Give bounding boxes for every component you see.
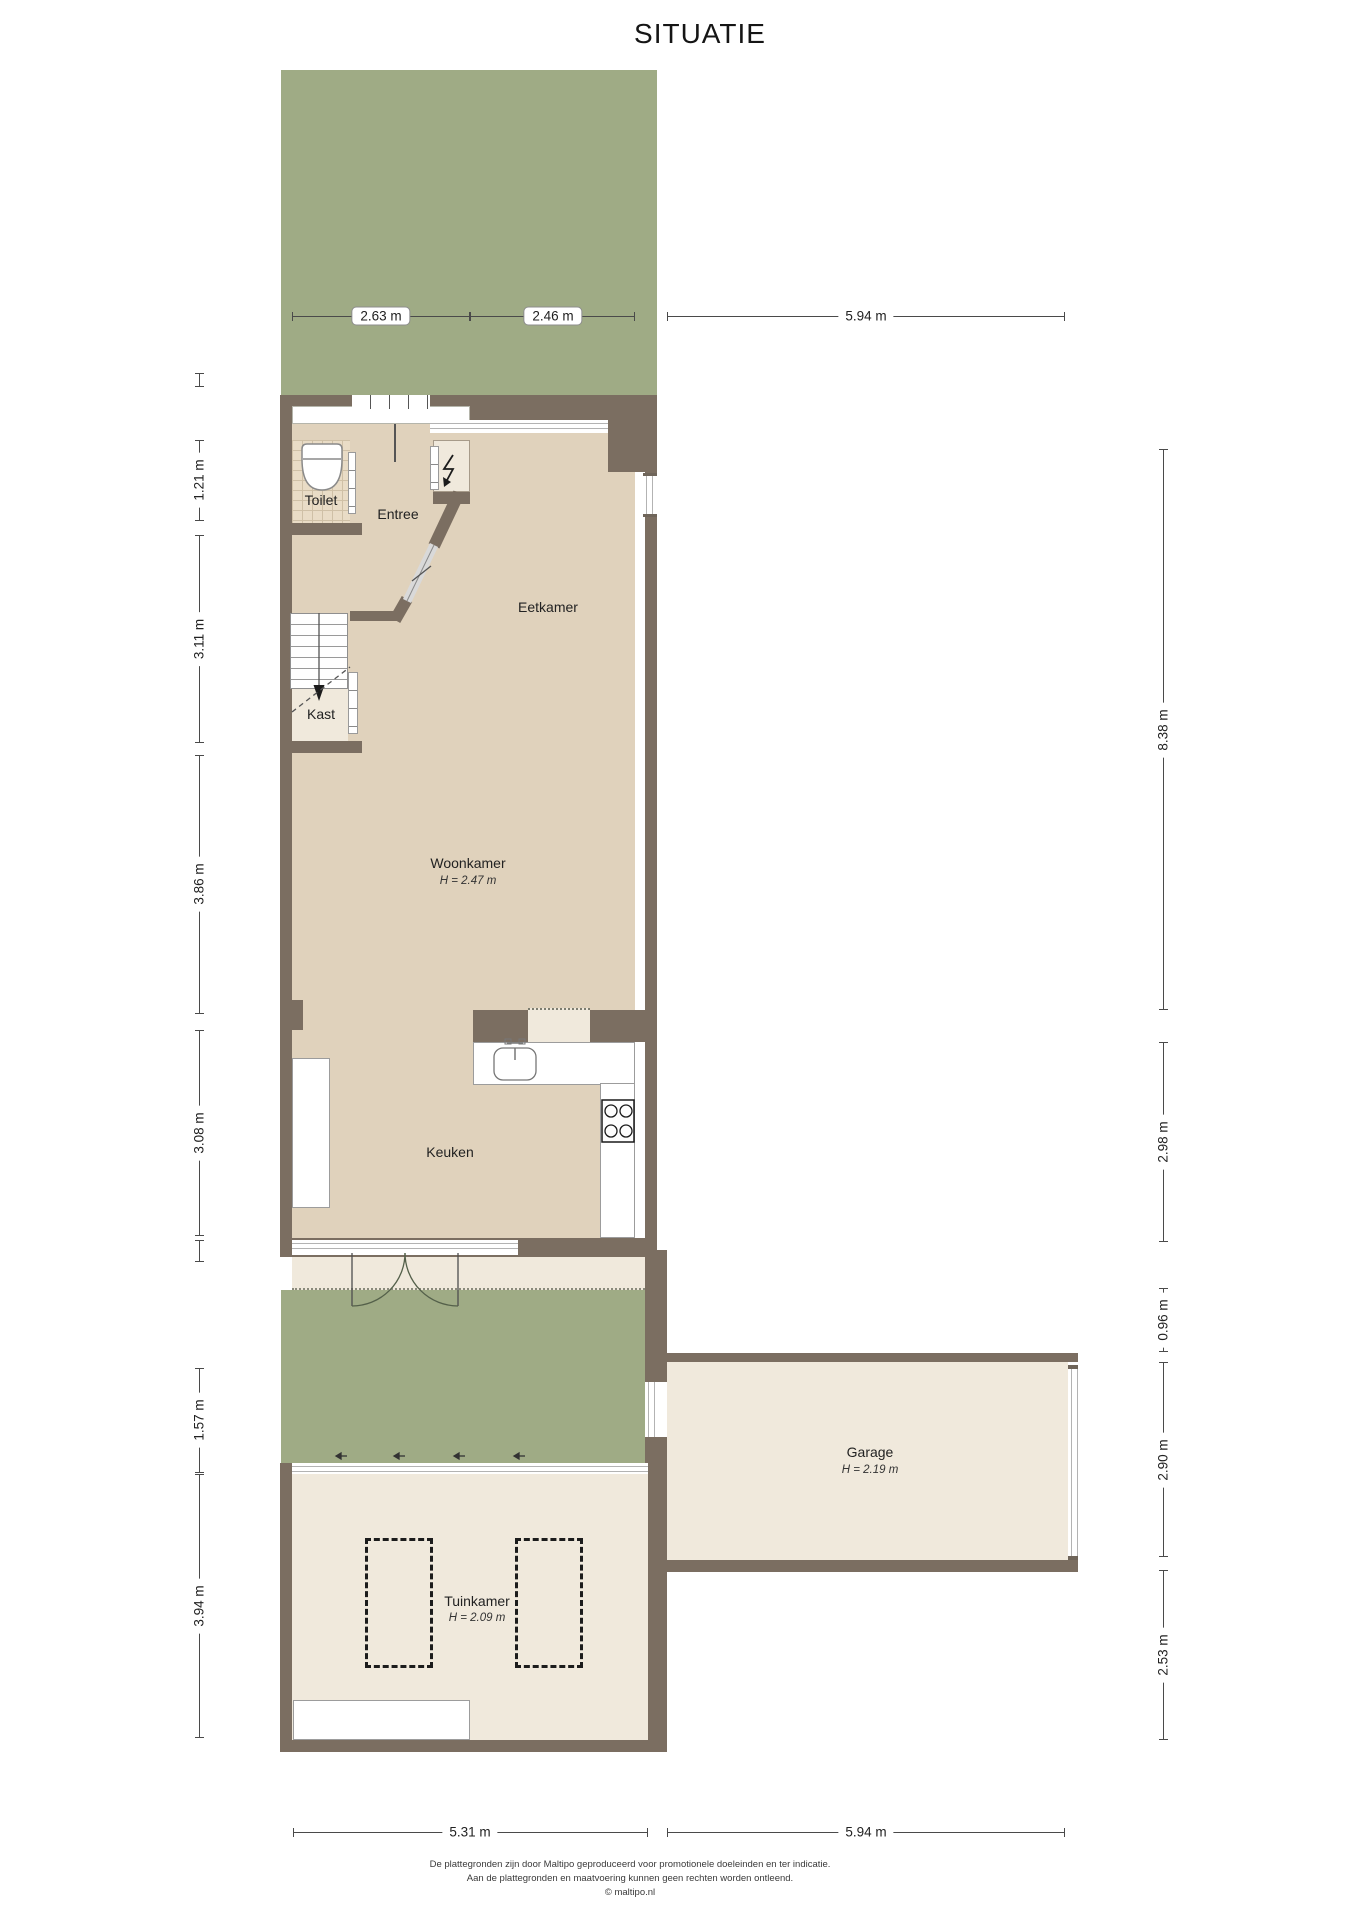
disclaimer-line-1: De plattegronden zijn door Maltipo gepro… [330,1858,930,1872]
woonkamer-label: Woonkamer [430,855,505,871]
entree-label: Entree [377,506,418,522]
disclaimer-line-3: © maltipo.nl [330,1886,930,1900]
stairs-arrow-icon [292,613,350,712]
garage-label: Garage [847,1444,894,1460]
dim-right-5-label: 2.53 m [1156,1627,1171,1682]
dim-bottom-2-label: 5.94 m [838,1825,893,1840]
keuken-label: Keuken [426,1144,473,1160]
dim-right-4-label: 2.90 m [1156,1432,1171,1487]
sink-icon [494,1039,536,1080]
dim-right-2-label: 2.98 m [1156,1114,1171,1169]
dim-top-2-label: 2.46 m [523,307,582,326]
dim-left-4-label: 3.08 m [192,1105,207,1160]
tuinkamer-label: Tuinkamer [444,1593,510,1609]
french-doors [352,1253,458,1306]
dim-left-2-label: 3.11 m [192,612,207,666]
dim-right-3-label: 0.96 m [1156,1292,1171,1347]
tuinkamer-height-label: H = 2.09 m [449,1612,506,1624]
kast-label: Kast [307,706,335,722]
garage-height-label: H = 2.19 m [842,1464,899,1476]
dim-top-1-label: 2.63 m [351,307,410,326]
dim-left-wall-line [199,1240,200,1262]
disclaimer-line-2: Aan de plattegronden en maatvoering kunn… [330,1872,930,1886]
dim-left-6-label: 3.94 m [192,1578,207,1633]
dim-left-1-label: 1.21 m [192,452,207,507]
lightning-icon [443,455,453,487]
dim-left-3-label: 3.86 m [192,856,207,911]
dim-top-3-label: 5.94 m [838,309,893,324]
dim-right-1-label: 8.38 m [1156,702,1171,757]
dim-left-step-line [199,373,200,387]
sliding-panel-arrows [336,1453,525,1459]
disclaimer: De plattegronden zijn door Maltipo gepro… [330,1858,930,1900]
toilet-label: Toilet [305,492,338,508]
woonkamer-height-label: H = 2.47 m [440,875,497,887]
floorplan-page: SITUATIE [0,0,1358,1920]
dim-bottom-1-label: 5.31 m [442,1825,497,1840]
dim-left-5-label: 1.57 m [192,1392,207,1447]
stove-icon [602,1100,634,1142]
toilet-icon [302,444,342,490]
eetkamer-label: Eetkamer [518,599,578,615]
